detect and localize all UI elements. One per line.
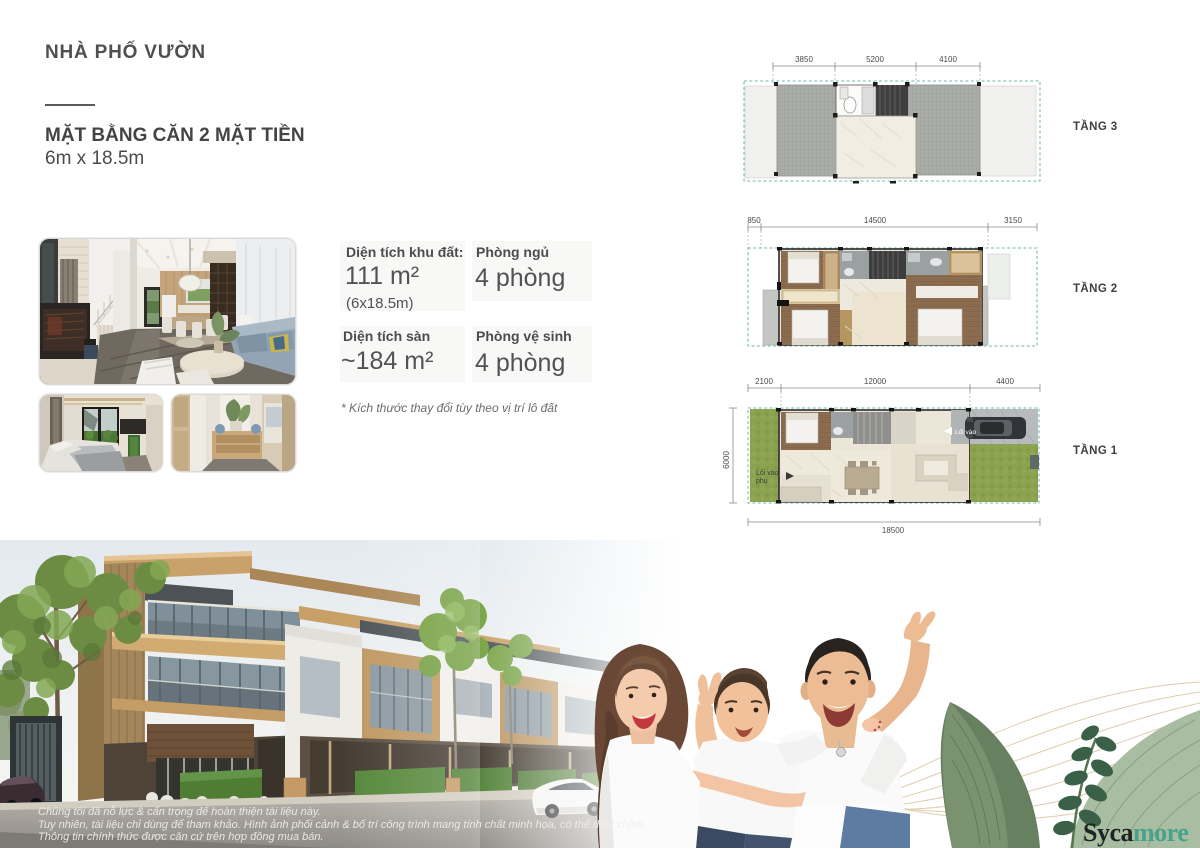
svg-text:14500: 14500 (864, 216, 887, 225)
svg-text:850: 850 (747, 216, 761, 225)
svg-text:5200: 5200 (866, 55, 884, 64)
svg-text:6000: 6000 (722, 451, 731, 469)
svg-text:Lối vào: Lối vào (756, 468, 779, 477)
svg-text:4100: 4100 (939, 55, 957, 64)
svg-text:3150: 3150 (1004, 216, 1022, 225)
svg-text:4400: 4400 (996, 377, 1014, 386)
svg-text:Lối vào: Lối vào (955, 427, 976, 436)
svg-text:18500: 18500 (882, 526, 905, 535)
svg-text:3850: 3850 (795, 55, 813, 64)
svg-text:12000: 12000 (864, 377, 887, 386)
svg-text:2100: 2100 (755, 377, 773, 386)
svg-text:phụ: phụ (756, 478, 768, 485)
